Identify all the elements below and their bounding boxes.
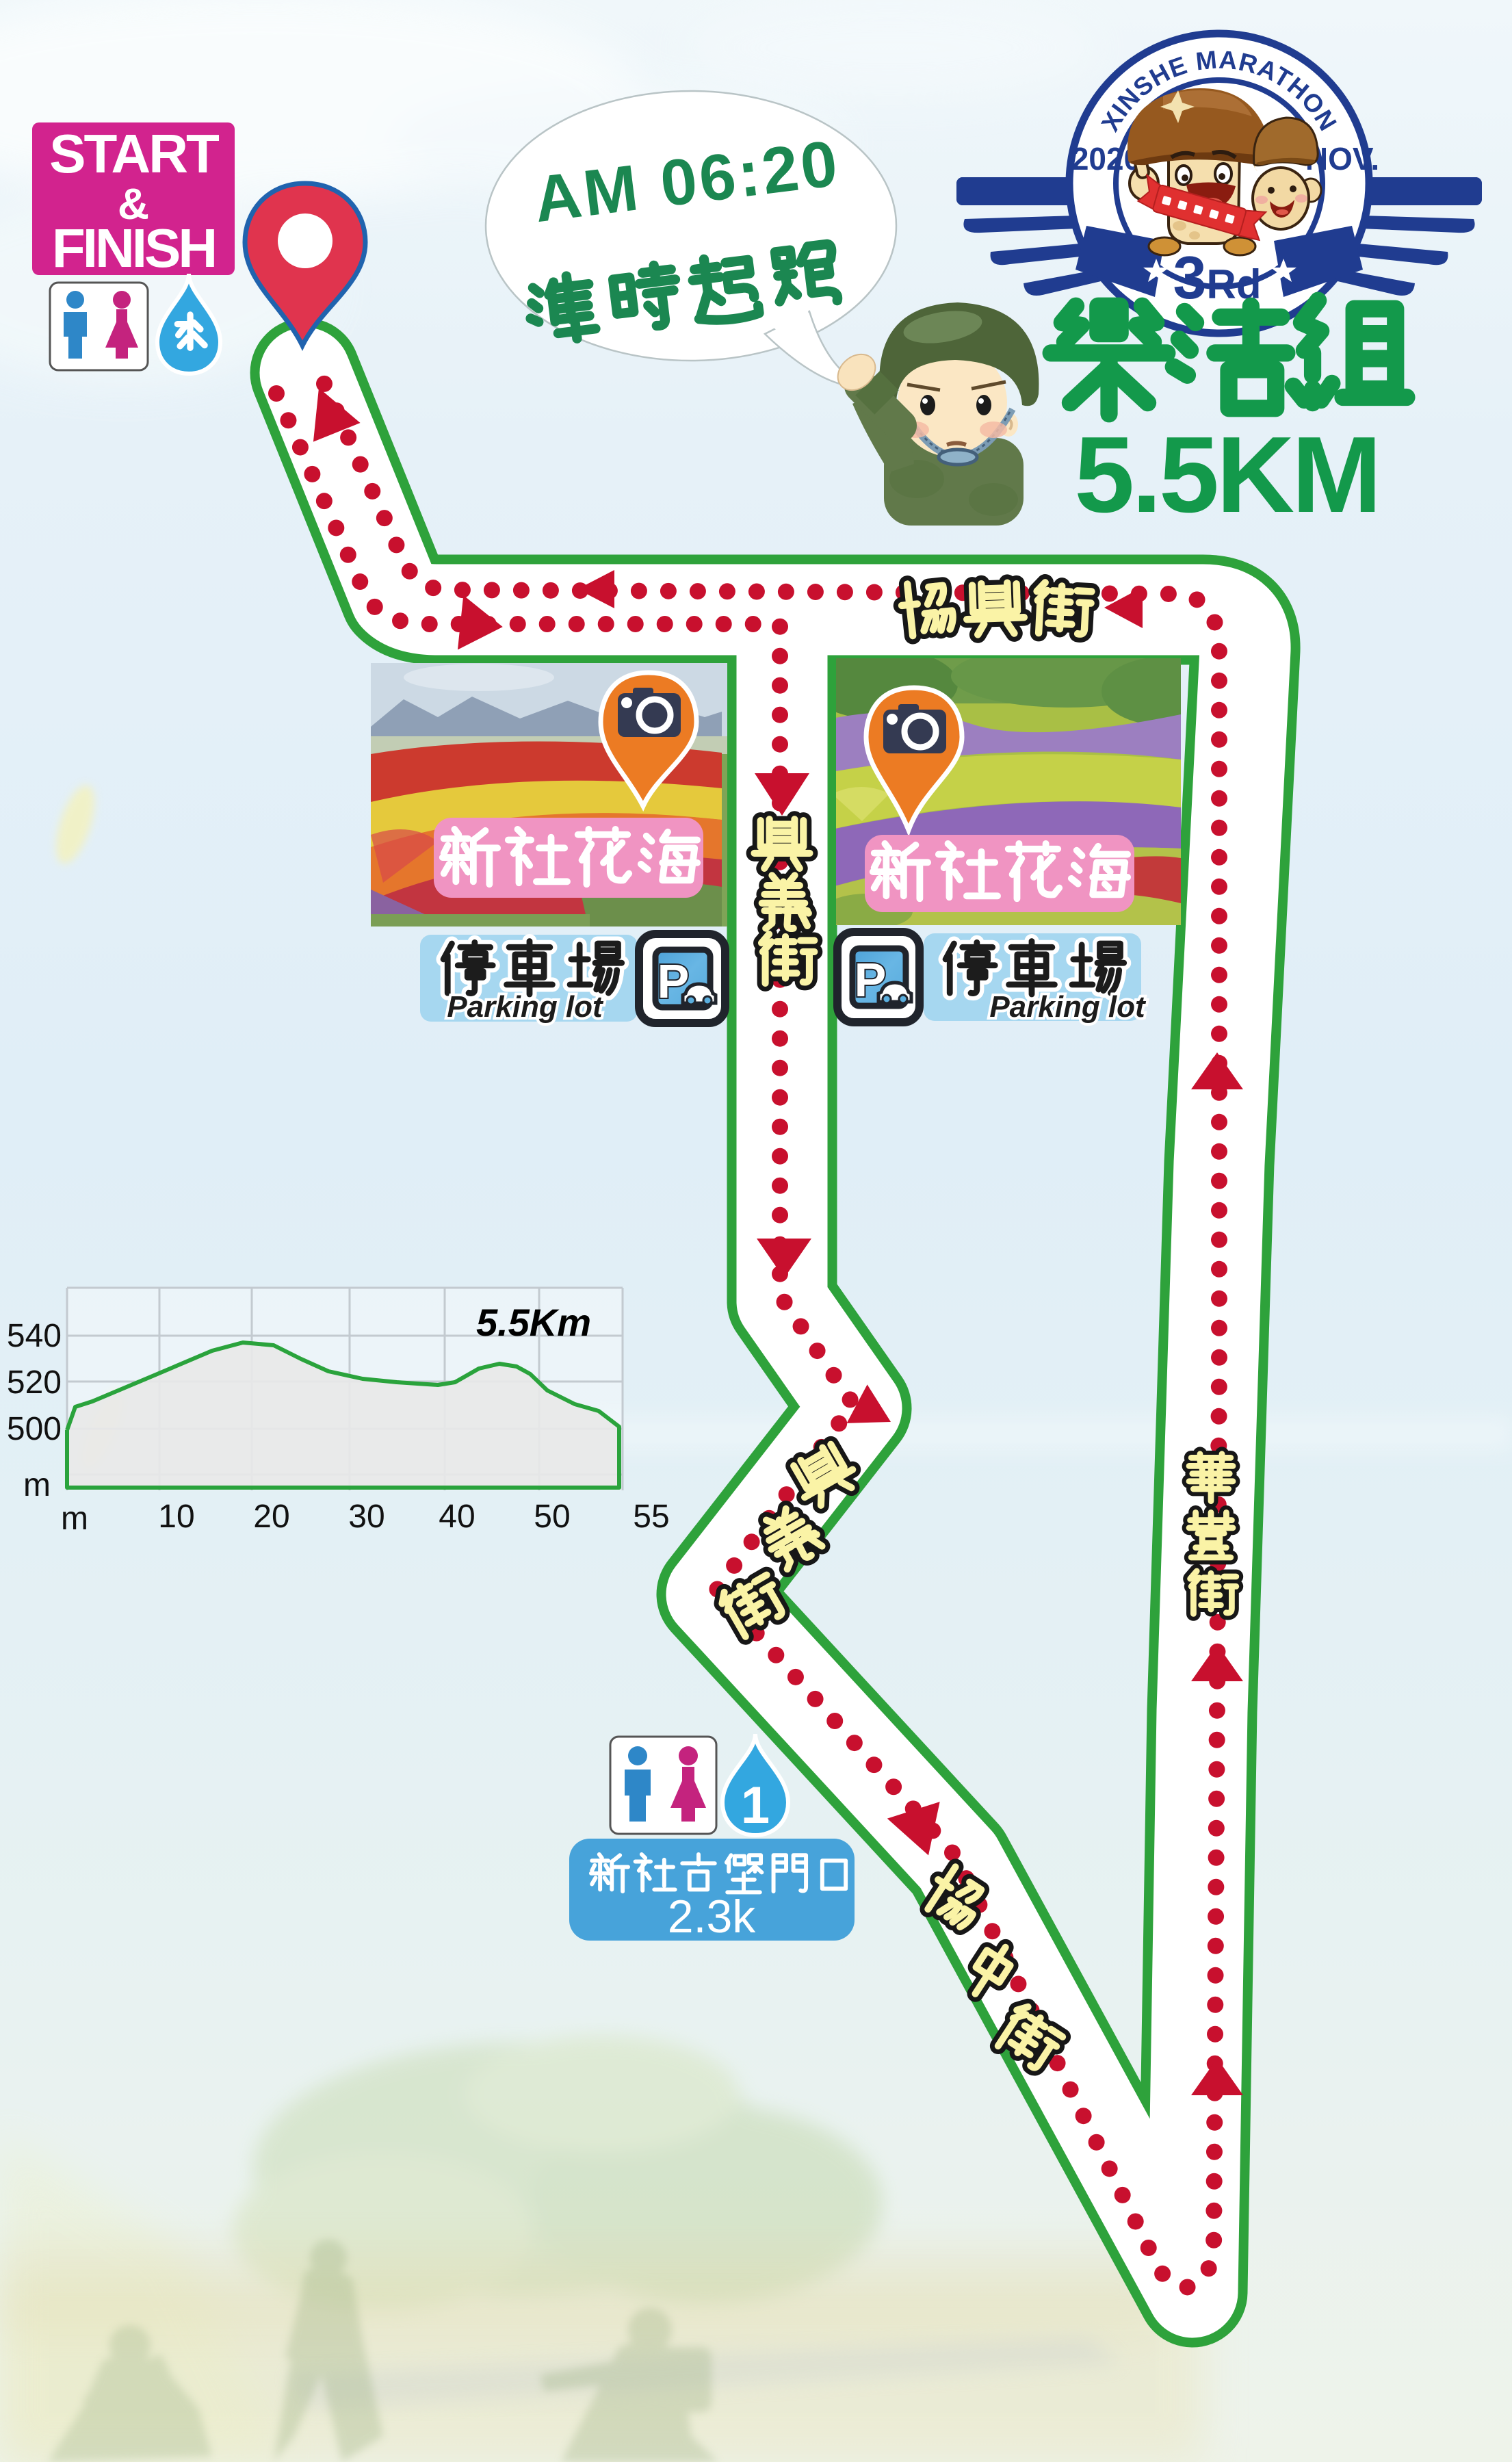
svg-text:2.3k: 2.3k [668, 1891, 757, 1943]
svg-text:540: 540 [7, 1318, 62, 1354]
svg-text:FINISH: FINISH [52, 218, 215, 278]
svg-text:40: 40 [439, 1499, 475, 1535]
svg-text:5.5Km: 5.5Km [476, 1301, 591, 1344]
svg-text:Parking lot: Parking lot [989, 990, 1147, 1024]
svg-text:520: 520 [7, 1364, 62, 1401]
svg-text:20: 20 [253, 1499, 289, 1535]
svg-text:10: 10 [158, 1499, 194, 1535]
svg-text:Parking lot: Parking lot [447, 990, 604, 1024]
svg-text:m: m [61, 1501, 88, 1537]
svg-text:50: 50 [534, 1499, 570, 1535]
svg-text:1: 1 [741, 1776, 770, 1835]
svg-text:30: 30 [348, 1499, 384, 1535]
svg-text:5.5KM: 5.5KM [1074, 415, 1379, 535]
svg-text:m: m [23, 1467, 51, 1503]
svg-text:55: 55 [633, 1499, 669, 1535]
svg-text:START: START [49, 123, 220, 184]
svg-text:500: 500 [7, 1411, 62, 1447]
